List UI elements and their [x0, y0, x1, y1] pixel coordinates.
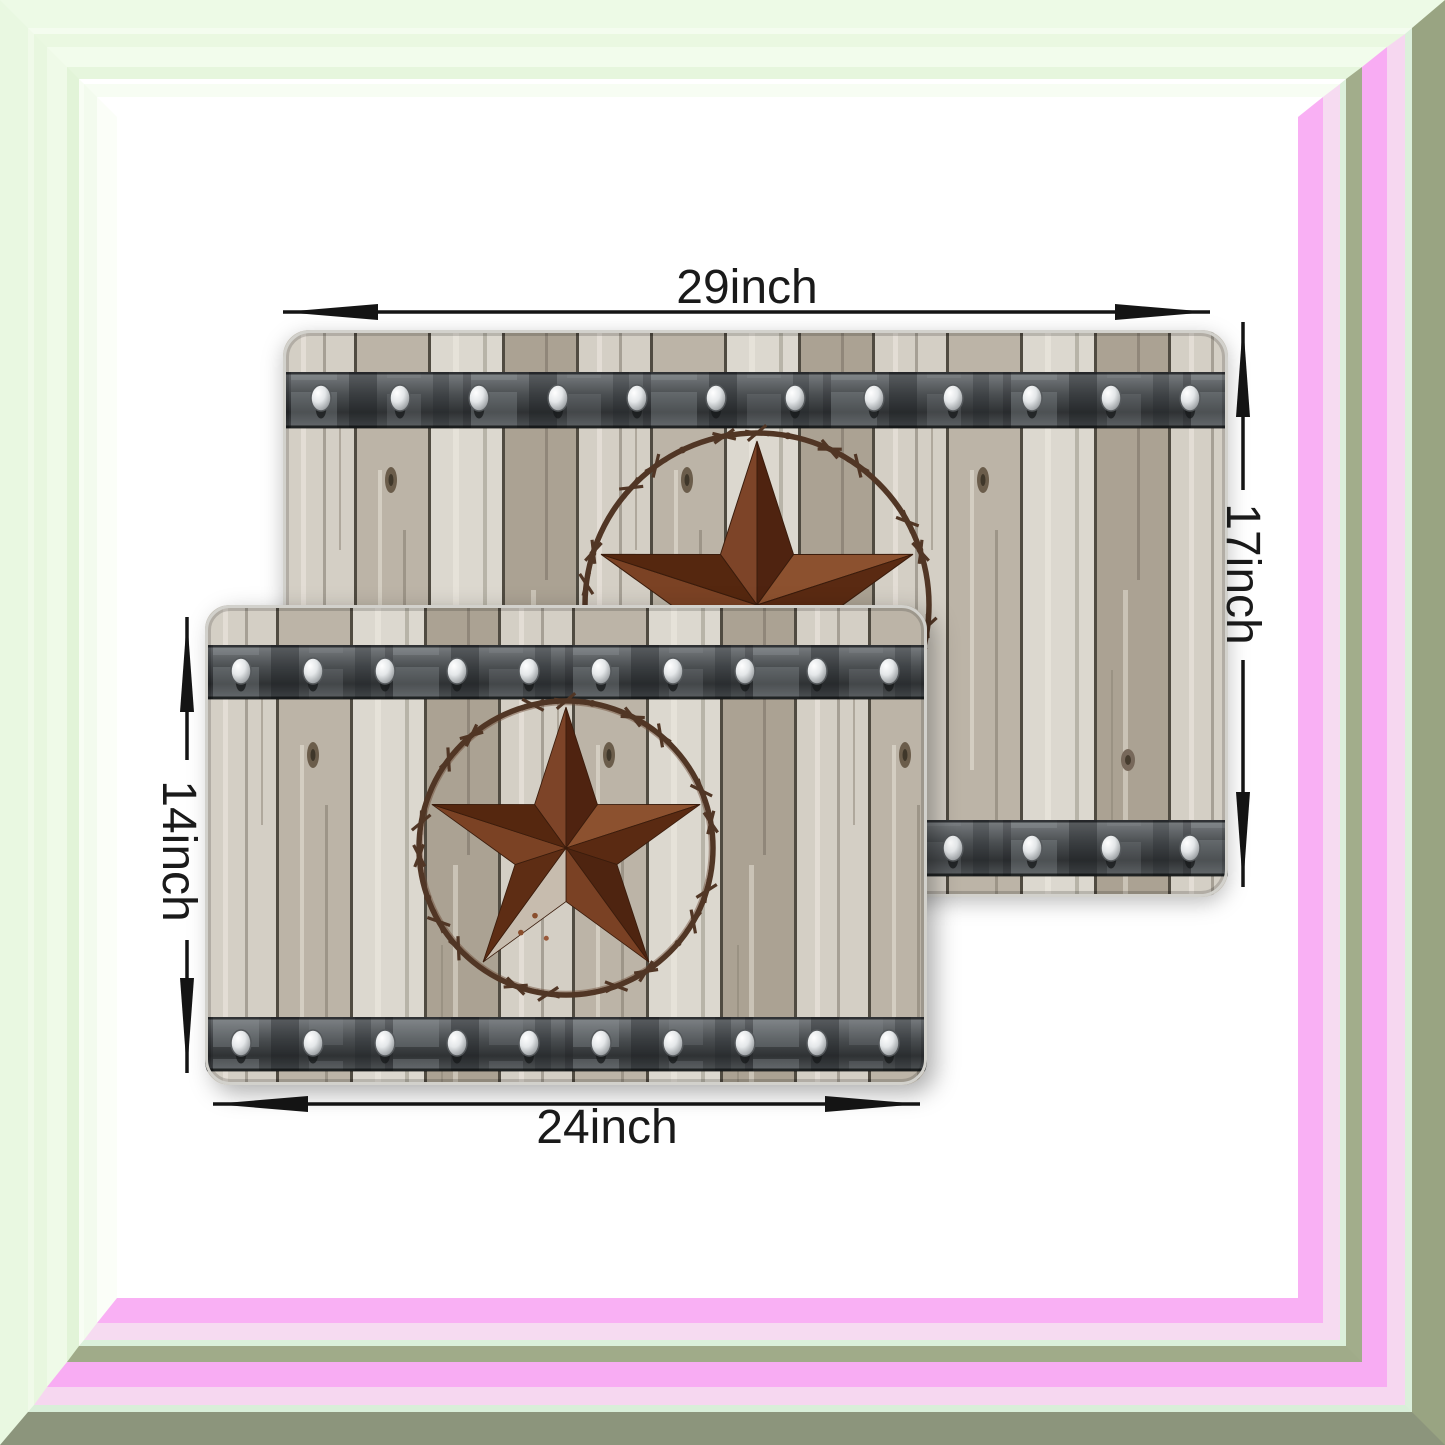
frame-layer-pink-inner [97, 97, 1323, 1323]
product-dimension-image: 29inch 17inch 14inch 24inch [0, 0, 1445, 1445]
frame-layer-palepink-outer [34, 34, 1405, 1405]
frame-layer-mint-outer [28, 28, 1412, 1412]
photo-background [117, 117, 1298, 1298]
decorative-frame [0, 0, 1445, 1445]
frame-layer-mint-inner [79, 79, 1346, 1346]
frame-layer-pink-outer [47, 47, 1387, 1387]
frame-layer-sage-mid [67, 67, 1362, 1362]
frame-layer-palepink-inner [84, 84, 1340, 1340]
